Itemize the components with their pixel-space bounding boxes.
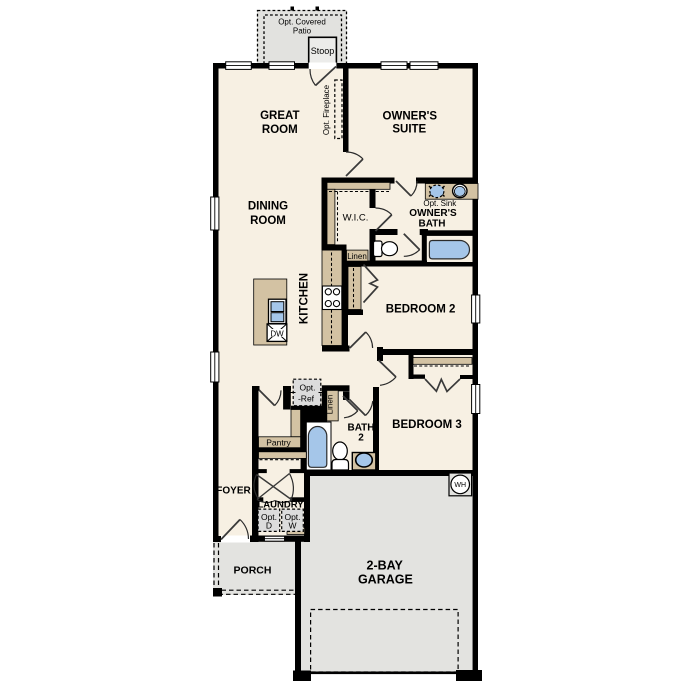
- svg-text:D: D: [266, 521, 272, 531]
- svg-text:WH: WH: [454, 482, 466, 489]
- svg-text:OWNER'S: OWNER'S: [383, 110, 438, 122]
- svg-text:BEDROOM 2: BEDROOM 2: [386, 304, 456, 316]
- svg-text:GARAGE: GARAGE: [358, 573, 413, 587]
- svg-text:2-BAY: 2-BAY: [367, 559, 404, 573]
- svg-text:BEDROOM 3: BEDROOM 3: [392, 419, 462, 431]
- svg-text:Opt.: Opt.: [299, 383, 315, 393]
- svg-text:OWNER'S: OWNER'S: [409, 208, 457, 219]
- svg-text:DINING: DINING: [248, 201, 288, 213]
- svg-text:FOYER: FOYER: [216, 486, 251, 497]
- svg-text:Linen: Linen: [347, 252, 367, 261]
- svg-text:Opt. Sink: Opt. Sink: [423, 199, 457, 208]
- svg-text:W: W: [288, 521, 296, 531]
- svg-text:Stoop: Stoop: [311, 46, 335, 56]
- svg-text:LAUNDRY: LAUNDRY: [257, 499, 304, 510]
- svg-text:KITCHEN: KITCHEN: [299, 273, 311, 324]
- svg-text:Linen: Linen: [326, 395, 335, 415]
- svg-text:Pantry: Pantry: [266, 438, 291, 448]
- svg-text:ROOM: ROOM: [262, 124, 298, 136]
- svg-text:BATH: BATH: [418, 219, 445, 230]
- svg-text:ROOM: ROOM: [250, 215, 286, 227]
- svg-text:DW: DW: [270, 330, 284, 339]
- svg-text:Opt. Fireplace: Opt. Fireplace: [322, 84, 331, 135]
- svg-text:Patio: Patio: [293, 27, 312, 36]
- svg-text:GREAT: GREAT: [260, 110, 299, 122]
- svg-text:2: 2: [358, 433, 364, 444]
- svg-text:Opt. Covered: Opt. Covered: [278, 18, 326, 27]
- svg-text:-Ref: -Ref: [298, 394, 315, 404]
- svg-text:W.I.C.: W.I.C.: [343, 213, 369, 224]
- svg-text:PORCH: PORCH: [234, 565, 272, 577]
- svg-text:SUITE: SUITE: [392, 124, 426, 136]
